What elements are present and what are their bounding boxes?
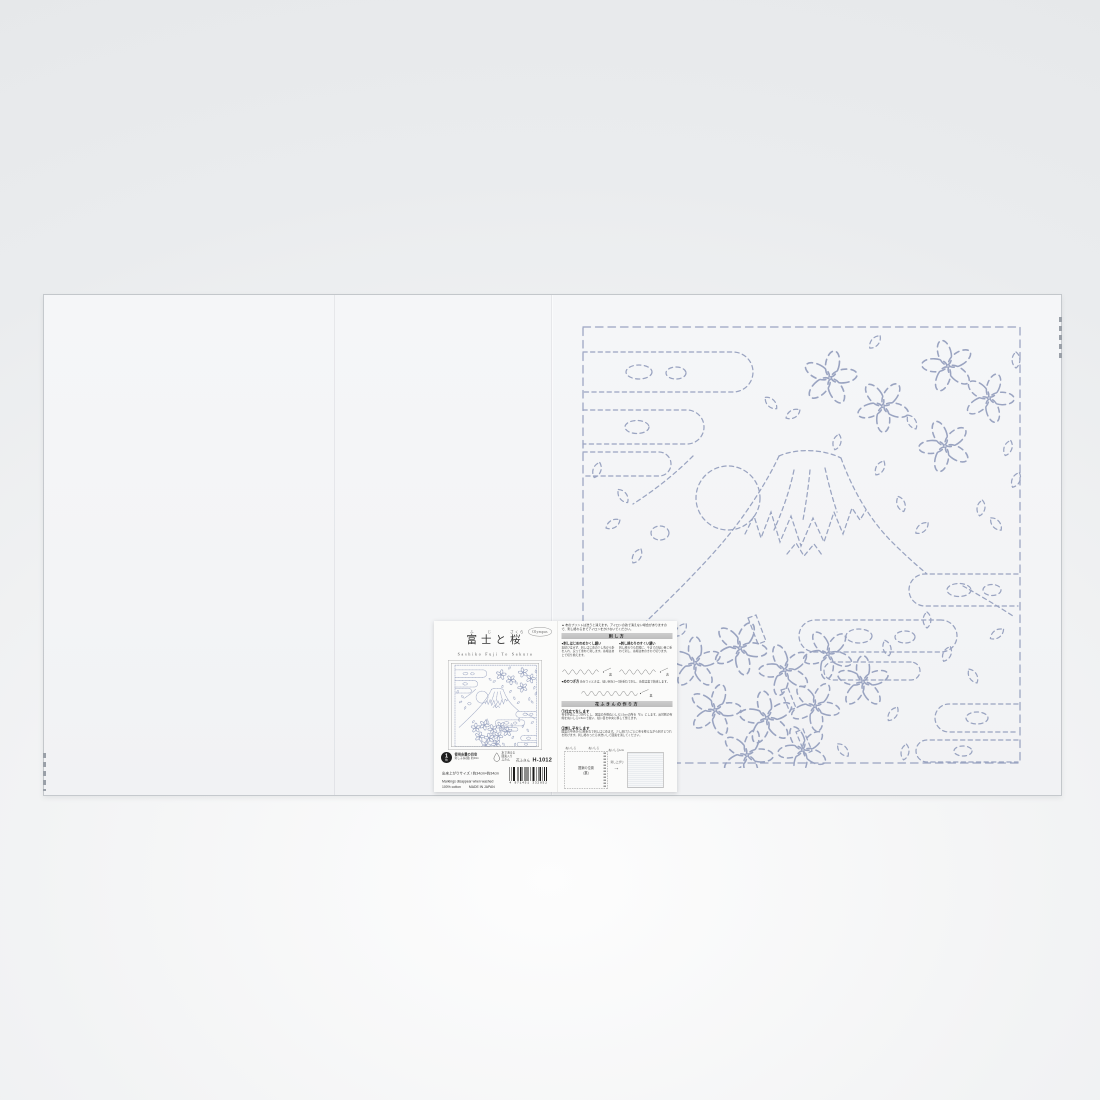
product-type: 花ふきん <box>516 758 530 763</box>
finished-size: 出来上がりサイズ / 約34cm×約34cm <box>442 771 499 776</box>
svg-text:表: 表 <box>666 672 669 677</box>
thread-join-title: ●めのつぎ方 <box>562 680 580 684</box>
stitch-end-body: 刺し終わりも同様に、今までの縫い目に重ねて刺し、糸端は布のきわで切ります。 <box>619 647 673 654</box>
folding-diagrams: ぬいしろ ぬいしろ ぬいしろ1cm 図案の位置 (裏) 刺し上がり → <box>562 745 673 790</box>
made-in-note: MADE IN JAPAN <box>469 786 495 790</box>
thread-usage-note: 使用糸量の目安 刺し子糸(細) 約40m <box>455 753 493 761</box>
selvage-mark <box>43 753 46 791</box>
fabric-fold-crease <box>334 295 335 795</box>
stitch-start-title: ●刺しはじめのめかくし繕い <box>562 641 616 646</box>
stitch-end-title: ●刺し終わりのすくい繕い <box>619 641 673 646</box>
running-stitch-diagram: 裏 <box>562 665 614 677</box>
section-making-header: 花ふきんの作り方 <box>562 701 673 707</box>
product-subtitle: Sashiko Fuji To Sakura <box>434 652 557 657</box>
barcode-number: 4 971451 332052 <box>509 781 548 785</box>
arrow-icon: → <box>614 764 620 771</box>
cherry-blossoms <box>668 334 1022 768</box>
svg-text:裏: 裏 <box>650 693 653 698</box>
layout-diagram-square: 図案の位置 (裏) <box>565 751 608 789</box>
section-stitching-header: 刺し方 <box>562 633 673 639</box>
pattern-preview-frame <box>448 660 542 750</box>
furigana-fuji: ふじ <box>467 630 496 634</box>
running-stitch-diagram: 表 <box>619 665 671 677</box>
svg-text:裏: 裏 <box>609 672 612 677</box>
seam-allowance-label: ぬいしろ <box>566 746 577 750</box>
title-sakura: 桜 <box>510 634 525 646</box>
step1-body: 布を外表に二つ折りにし、図案の外側ぬいしろ1.5cmの所を「わ」にします。反対側… <box>562 714 673 721</box>
label-front-panel: Olympus 富士ふじと桜さくら Sashiko Fuji To Sakura… <box>434 621 557 792</box>
barcode-bars <box>509 767 548 781</box>
cotton-note: 100% cotton <box>442 786 461 790</box>
warning-text: ▲ 布のプリントは洗うと消えます。アイロンの熱で消えない場合がありますので、刺し… <box>562 624 673 632</box>
fold-edge-mark <box>604 753 607 788</box>
product-photo-stage: Olympus 富士ふじと桜さくら Sashiko Fuji To Sakura… <box>0 0 1100 1100</box>
water-drop-icon <box>493 752 501 762</box>
step2-body: 図案の中央から2枚重ねで刺しはじめます。少し刺けたごとに布を整えながら刺すとつれ… <box>562 731 673 738</box>
product-code-line: 花ふきん H-1012 <box>516 757 552 763</box>
english-note: Markings disappear when washed <box>442 780 493 784</box>
seam-allowance-label: ぬいしろ <box>589 746 600 750</box>
seam-note: ぬいしろ1cm <box>609 748 625 752</box>
sheet-count-badge: 1 枚 <box>441 752 452 763</box>
thread-join: ●めのつぎ方 糸をつぐときは、縫い目を2〜3針重ねて刺し、糸端は裏で始末します。 <box>562 679 673 684</box>
thread-join-body: 糸をつぐときは、縫い目を2〜3針重ねて刺し、糸端は裏で始末します。 <box>580 681 670 684</box>
washable-note: 水で消える 図案入り ふきん <box>502 752 516 763</box>
finished-fukin-diagram <box>628 752 664 788</box>
pattern-preview-image <box>452 664 540 748</box>
stitch-start-body: 玉結びはせず、刺しはじめの少し先から針を入れ、戻って重ねて刺します。糸端はあとで… <box>562 647 616 658</box>
title-to: と <box>496 634 511 646</box>
barcode: 4 971451 332052 <box>509 767 548 785</box>
stitching-columns: ●刺しはじめのめかくし繕い 玉結びはせず、刺しはじめの少し先から針を入れ、戻って… <box>562 641 673 657</box>
badge-unit: 枚 <box>445 759 448 762</box>
material-note: 100% cotton MADE IN JAPAN <box>442 786 495 790</box>
selvage-mark <box>1059 317 1062 361</box>
product-title: 富士ふじと桜さくら <box>434 630 557 647</box>
label-instructions-panel: ▲ 布のプリントは洗うと消えます。アイロンの熱で消えない場合がありますので、刺し… <box>557 621 677 792</box>
product-code: H-1012 <box>533 757 553 763</box>
thread-join-diagram: 裏 <box>562 687 673 700</box>
furigana-sakura: さくら <box>510 630 525 634</box>
title-fuji: 富士 <box>467 634 496 646</box>
stitch-diagrams: 裏 表 <box>562 665 673 677</box>
product-label: Olympus 富士ふじと桜さくら Sashiko Fuji To Sakura… <box>434 621 677 792</box>
